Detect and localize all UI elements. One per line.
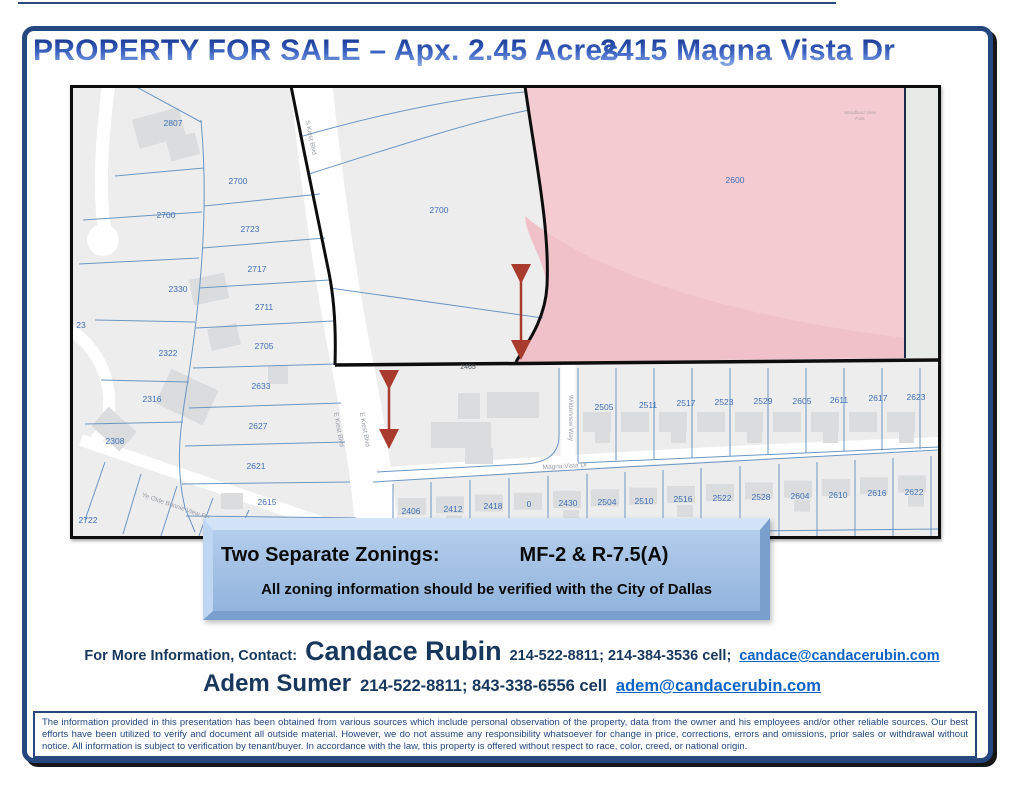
svg-text:2723: 2723 [241,224,260,234]
svg-text:2611: 2611 [830,395,849,405]
svg-text:2430: 2430 [559,498,578,508]
svg-text:2610: 2610 [829,490,848,500]
svg-text:0: 0 [527,499,532,509]
svg-text:2605: 2605 [793,396,812,406]
agent1-phones: 214-522-8811; 214-384-3536 cell; [510,648,732,664]
agent1-email-link[interactable]: candace@candacerubin.com [739,648,939,664]
svg-text:2330: 2330 [169,284,188,294]
agent2-phones: 214-522-8811; 843-338-6556 cell [360,677,607,696]
contact-prefix: For More Information, Contact: [84,648,297,664]
svg-text:2617: 2617 [869,393,888,403]
svg-text:2406: 2406 [402,506,421,516]
svg-text:2621: 2621 [247,461,266,471]
svg-text:2604: 2604 [791,491,810,501]
svg-text:2700: 2700 [430,205,449,215]
svg-text:2622: 2622 [905,487,924,497]
park-strip [905,88,938,360]
zoning-disclaimer: All zoning information should be verifie… [213,581,760,598]
title-property-for-sale: PROPERTY FOR SALE – Apx. 2.45 Acres [33,34,619,68]
svg-text:Wilderview Way: Wilderview Way [567,395,574,442]
parcel-map: 2807270027002723271727112330232322270526… [70,85,941,539]
svg-text:2418: 2418 [484,501,503,511]
svg-text:2510: 2510 [635,496,654,506]
flyer-page: PROPERTY FOR SALE – Apx. 2.45 Acres 2415… [0,0,1024,789]
zoning-value: MF-2 & R-7.5(A) [520,544,669,567]
contact-line-1: For More Information, Contact: Candace R… [0,636,1024,667]
svg-text:2465: 2465 [460,364,476,371]
svg-text:2807: 2807 [164,118,183,128]
svg-text:2528: 2528 [752,492,771,502]
contact-line-2: Adem Sumer 214-522-8811; 843-338-6556 ce… [0,670,1024,698]
svg-text:2633: 2633 [252,381,271,391]
map-svg: 2807270027002723271727112330232322270526… [73,88,938,536]
svg-text:2529: 2529 [754,396,773,406]
svg-text:2516: 2516 [674,494,693,504]
svg-text:2517: 2517 [677,398,696,408]
svg-text:2711: 2711 [255,302,274,312]
svg-text:2322: 2322 [159,348,178,358]
svg-text:2717: 2717 [248,264,267,274]
zoning-line: Two Separate Zonings: MF-2 & R-7.5(A) [221,544,760,567]
svg-text:2511: 2511 [639,400,658,410]
svg-text:2722: 2722 [79,515,98,525]
svg-text:2505: 2505 [595,402,614,412]
svg-text:2700: 2700 [229,176,248,186]
zoning-label: Two Separate Zonings: [221,544,440,567]
svg-text:2615: 2615 [258,497,277,507]
svg-text:2523: 2523 [715,397,734,407]
agent2-email-link[interactable]: adem@candacerubin.com [616,677,821,696]
agent1-name: Candace Rubin [305,636,502,667]
agent2-name: Adem Sumer [203,670,351,698]
legal-disclaimer: The information provided in this present… [33,711,977,758]
svg-text:2522: 2522 [713,493,732,503]
svg-text:2627: 2627 [249,421,268,431]
svg-text:2705: 2705 [255,341,274,351]
svg-text:2308: 2308 [106,436,125,446]
svg-text:2616: 2616 [868,488,887,498]
zoning-banner: Two Separate Zonings: MF-2 & R-7.5(A) Al… [203,518,770,620]
svg-text:23: 23 [76,320,86,330]
svg-text:2600: 2600 [726,175,745,185]
svg-text:2700: 2700 [157,210,176,220]
svg-text:Park: Park [855,116,865,121]
svg-text:2504: 2504 [598,497,617,507]
svg-text:2623: 2623 [907,392,926,402]
cul-de-sac [87,224,119,256]
page-title: PROPERTY FOR SALE – Apx. 2.45 Acres 2415… [33,34,993,74]
top-rule [18,2,836,4]
svg-text:2316: 2316 [143,394,162,404]
title-address: 2415 Magna Vista Dr [600,34,895,68]
svg-text:Woodland View: Woodland View [844,110,876,115]
svg-text:2412: 2412 [444,504,463,514]
